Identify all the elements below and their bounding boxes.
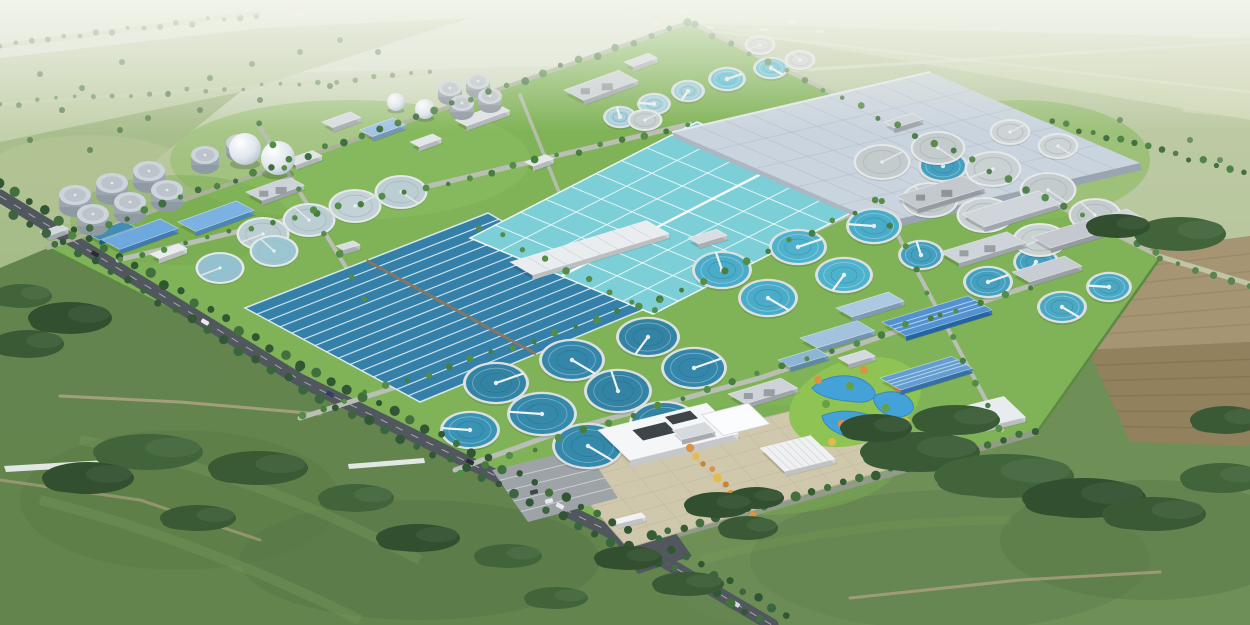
aerial-rendering-stage [0, 0, 1250, 625]
atmosphere-wash [0, 0, 1250, 625]
wastewater-plant-aerial-rendering [0, 0, 1250, 625]
